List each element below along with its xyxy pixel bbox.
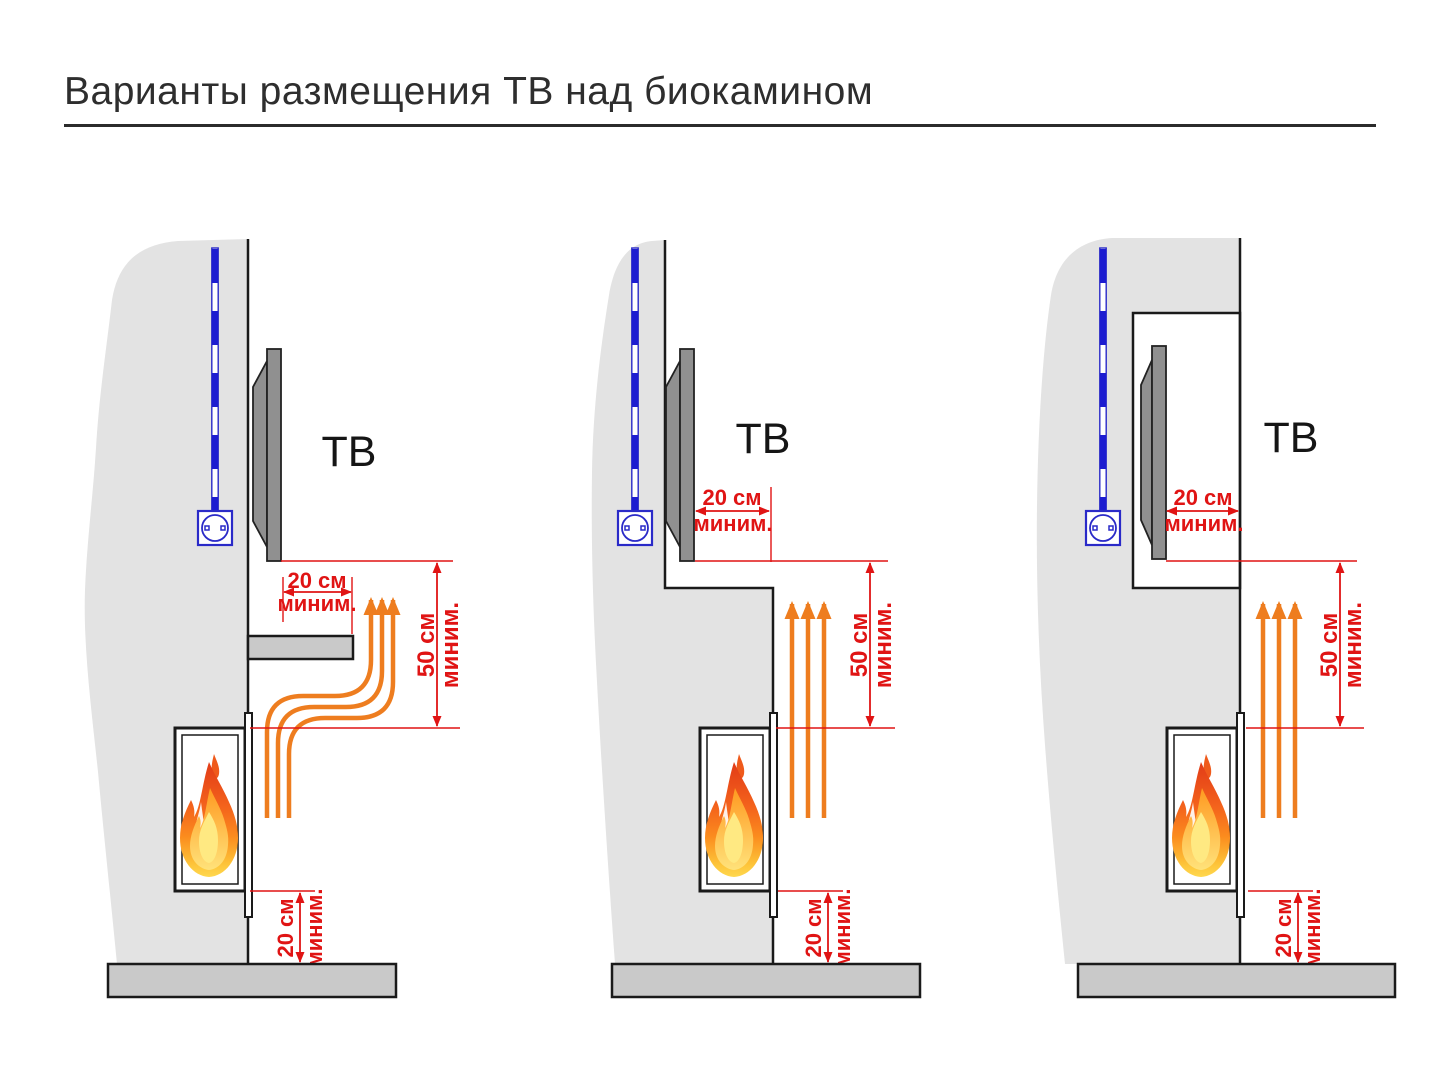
panel-tv-on-step: ТВ 20 см миним. — [592, 240, 920, 997]
dim-floor: 20 см миним. — [250, 889, 327, 968]
tv-label: ТВ — [1264, 414, 1319, 462]
dim-gap: 20 см миним. — [694, 485, 773, 562]
svg-text:миним.: миним. — [302, 889, 327, 968]
infographic-page: Варианты размещения ТВ над биокамином — [0, 0, 1440, 1080]
floor-slab — [1078, 964, 1395, 997]
tv-side-profile — [666, 349, 694, 561]
power-socket-icon — [1086, 511, 1120, 545]
fireplace — [700, 713, 777, 917]
svg-text:миним.: миним. — [437, 602, 464, 688]
dim-floor: 20 см миним. — [778, 889, 855, 968]
mantel-shelf — [248, 636, 353, 659]
tv-label: ТВ — [322, 428, 377, 476]
tv-panel — [267, 349, 281, 561]
svg-text:20 см: 20 см — [801, 898, 826, 957]
fireplace — [1167, 713, 1244, 917]
tv-back-bulge — [666, 361, 680, 547]
dim-gap: 20 см миним. — [1165, 485, 1244, 536]
heat-flow-arrows — [792, 604, 824, 818]
svg-text:миним.: миним. — [1165, 511, 1244, 536]
svg-text:50 см: 50 см — [846, 613, 873, 677]
svg-text:миним.: миним. — [870, 602, 897, 688]
fireplace-front-panel — [770, 713, 777, 917]
floor-slab — [108, 964, 396, 997]
svg-text:миним.: миним. — [830, 889, 855, 968]
tv-label: ТВ — [736, 415, 791, 463]
fireplace-front-panel — [245, 713, 252, 917]
svg-text:миним.: миним. — [1300, 889, 1325, 968]
heat-flow-arrows — [267, 600, 393, 818]
power-socket-icon — [618, 511, 652, 545]
tv-side-profile — [253, 349, 281, 561]
svg-text:миним.: миним. — [694, 511, 773, 536]
tv-back-bulge — [1141, 360, 1152, 545]
panel-tv-above-shelf: ТВ 20 см миним. — [85, 239, 464, 997]
svg-text:20 см: 20 см — [287, 568, 346, 593]
floor-slab — [612, 964, 920, 997]
power-socket-icon — [198, 511, 232, 545]
svg-text:50 см: 50 см — [413, 613, 440, 677]
svg-text:20 см: 20 см — [1271, 898, 1296, 957]
fireplace-front-panel — [1237, 713, 1244, 917]
heat-flow-arrows — [1263, 604, 1295, 818]
svg-text:20 см: 20 см — [702, 485, 761, 510]
diagram-canvas: ТВ 20 см миним. — [0, 0, 1440, 1080]
svg-text:миним.: миним. — [278, 591, 357, 616]
fireplace — [175, 713, 252, 917]
svg-text:20 см: 20 см — [1173, 485, 1232, 510]
panel-tv-in-niche: ТВ 20 см миним. 50 см — [1037, 238, 1395, 997]
svg-text:50 см: 50 см — [1316, 613, 1343, 677]
dim-floor: 20 см миним. — [1248, 889, 1325, 968]
tv-back-bulge — [253, 361, 267, 547]
svg-text:20 см: 20 см — [273, 898, 298, 957]
svg-text:миним.: миним. — [1340, 602, 1367, 688]
tv-panel — [680, 349, 694, 561]
dim-gap: 20 см миним. — [278, 568, 357, 634]
tv-side-profile — [1141, 346, 1166, 559]
